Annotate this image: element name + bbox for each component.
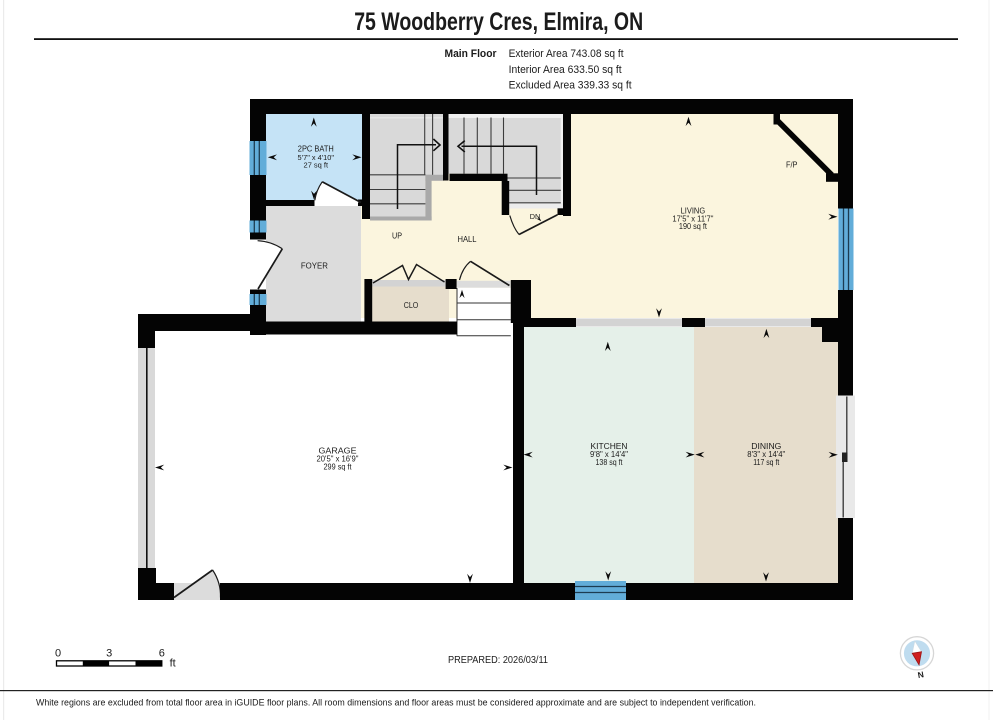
svg-text:27 sq ft: 27 sq ft — [304, 161, 329, 170]
svg-text:299 sq ft: 299 sq ft — [324, 462, 353, 471]
svg-text:0: 0 — [55, 648, 61, 660]
svg-text:DN: DN — [530, 212, 541, 221]
svg-text:HALL: HALL — [458, 234, 477, 244]
svg-text:Exterior Area 743.08 sq ft: Exterior Area 743.08 sq ft — [509, 48, 624, 60]
svg-text:138 sq ft: 138 sq ft — [596, 458, 624, 467]
svg-text:UP: UP — [392, 230, 402, 240]
svg-text:Interior Area 633.50 sq ft: Interior Area 633.50 sq ft — [509, 64, 622, 76]
svg-text:PREPARED: 2026/03/11: PREPARED: 2026/03/11 — [448, 655, 548, 666]
svg-text:ft: ft — [170, 658, 176, 670]
svg-text:White regions are excluded fro: White regions are excluded from total fl… — [36, 698, 756, 708]
svg-text:CLO: CLO — [404, 300, 419, 310]
svg-text:FOYER: FOYER — [301, 261, 328, 271]
svg-text:F/P: F/P — [786, 161, 798, 170]
svg-text:Main Floor: Main Floor — [445, 48, 498, 60]
svg-text:6: 6 — [159, 648, 165, 660]
svg-text:3: 3 — [106, 648, 112, 660]
svg-text:Excluded Area 339.33 sq ft: Excluded Area 339.33 sq ft — [509, 79, 632, 91]
svg-text:190 sq ft: 190 sq ft — [679, 222, 708, 231]
svg-text:75 Woodberry Cres, Elmira, ON: 75 Woodberry Cres, Elmira, ON — [354, 8, 643, 36]
svg-text:117 sq ft: 117 sq ft — [753, 458, 780, 467]
